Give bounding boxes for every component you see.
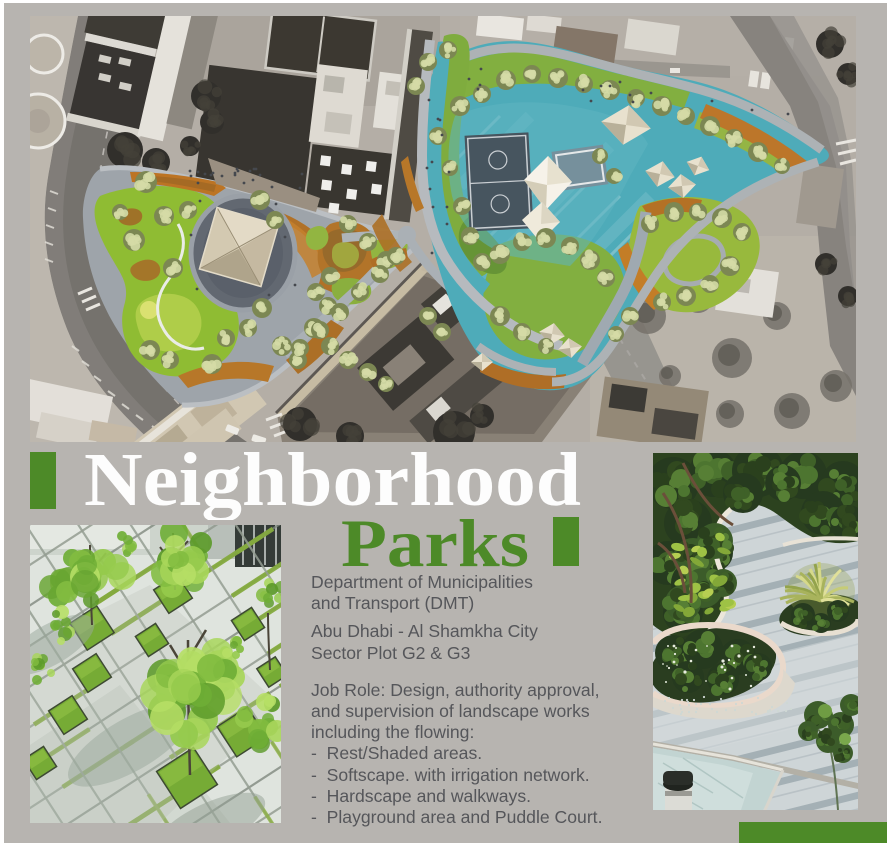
svg-text:Parks: Parks — [341, 505, 529, 580]
